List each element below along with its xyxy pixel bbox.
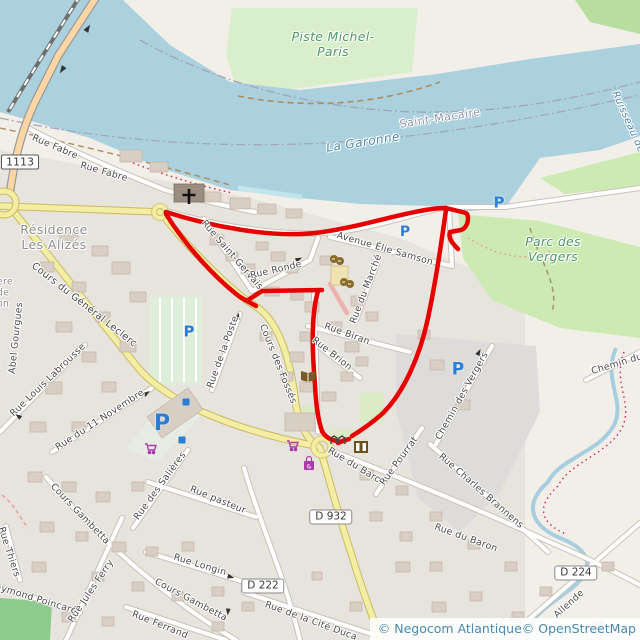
route-shield-d222: D 222 — [241, 579, 284, 594]
route-shield-d932: D 932 — [309, 510, 352, 525]
map-viewport[interactable]: & Rue Fabre Rue Fabre Rue Saint-Gervais … — [0, 0, 640, 640]
route-shield-1113: 1113 — [1, 155, 39, 170]
svg-text:&: & — [306, 463, 311, 471]
route-shield-d224: D 224 — [554, 566, 597, 581]
map-canvas: & — [0, 0, 640, 640]
green-small-2 — [360, 393, 384, 423]
market-square — [150, 295, 202, 385]
cinema-film-icon — [354, 441, 368, 453]
map-attribution[interactable]: © Negocom Atlantique© OpenStreetMap — [370, 618, 640, 640]
blue-square-marker — [179, 437, 186, 444]
blue-square-marker — [183, 399, 190, 406]
